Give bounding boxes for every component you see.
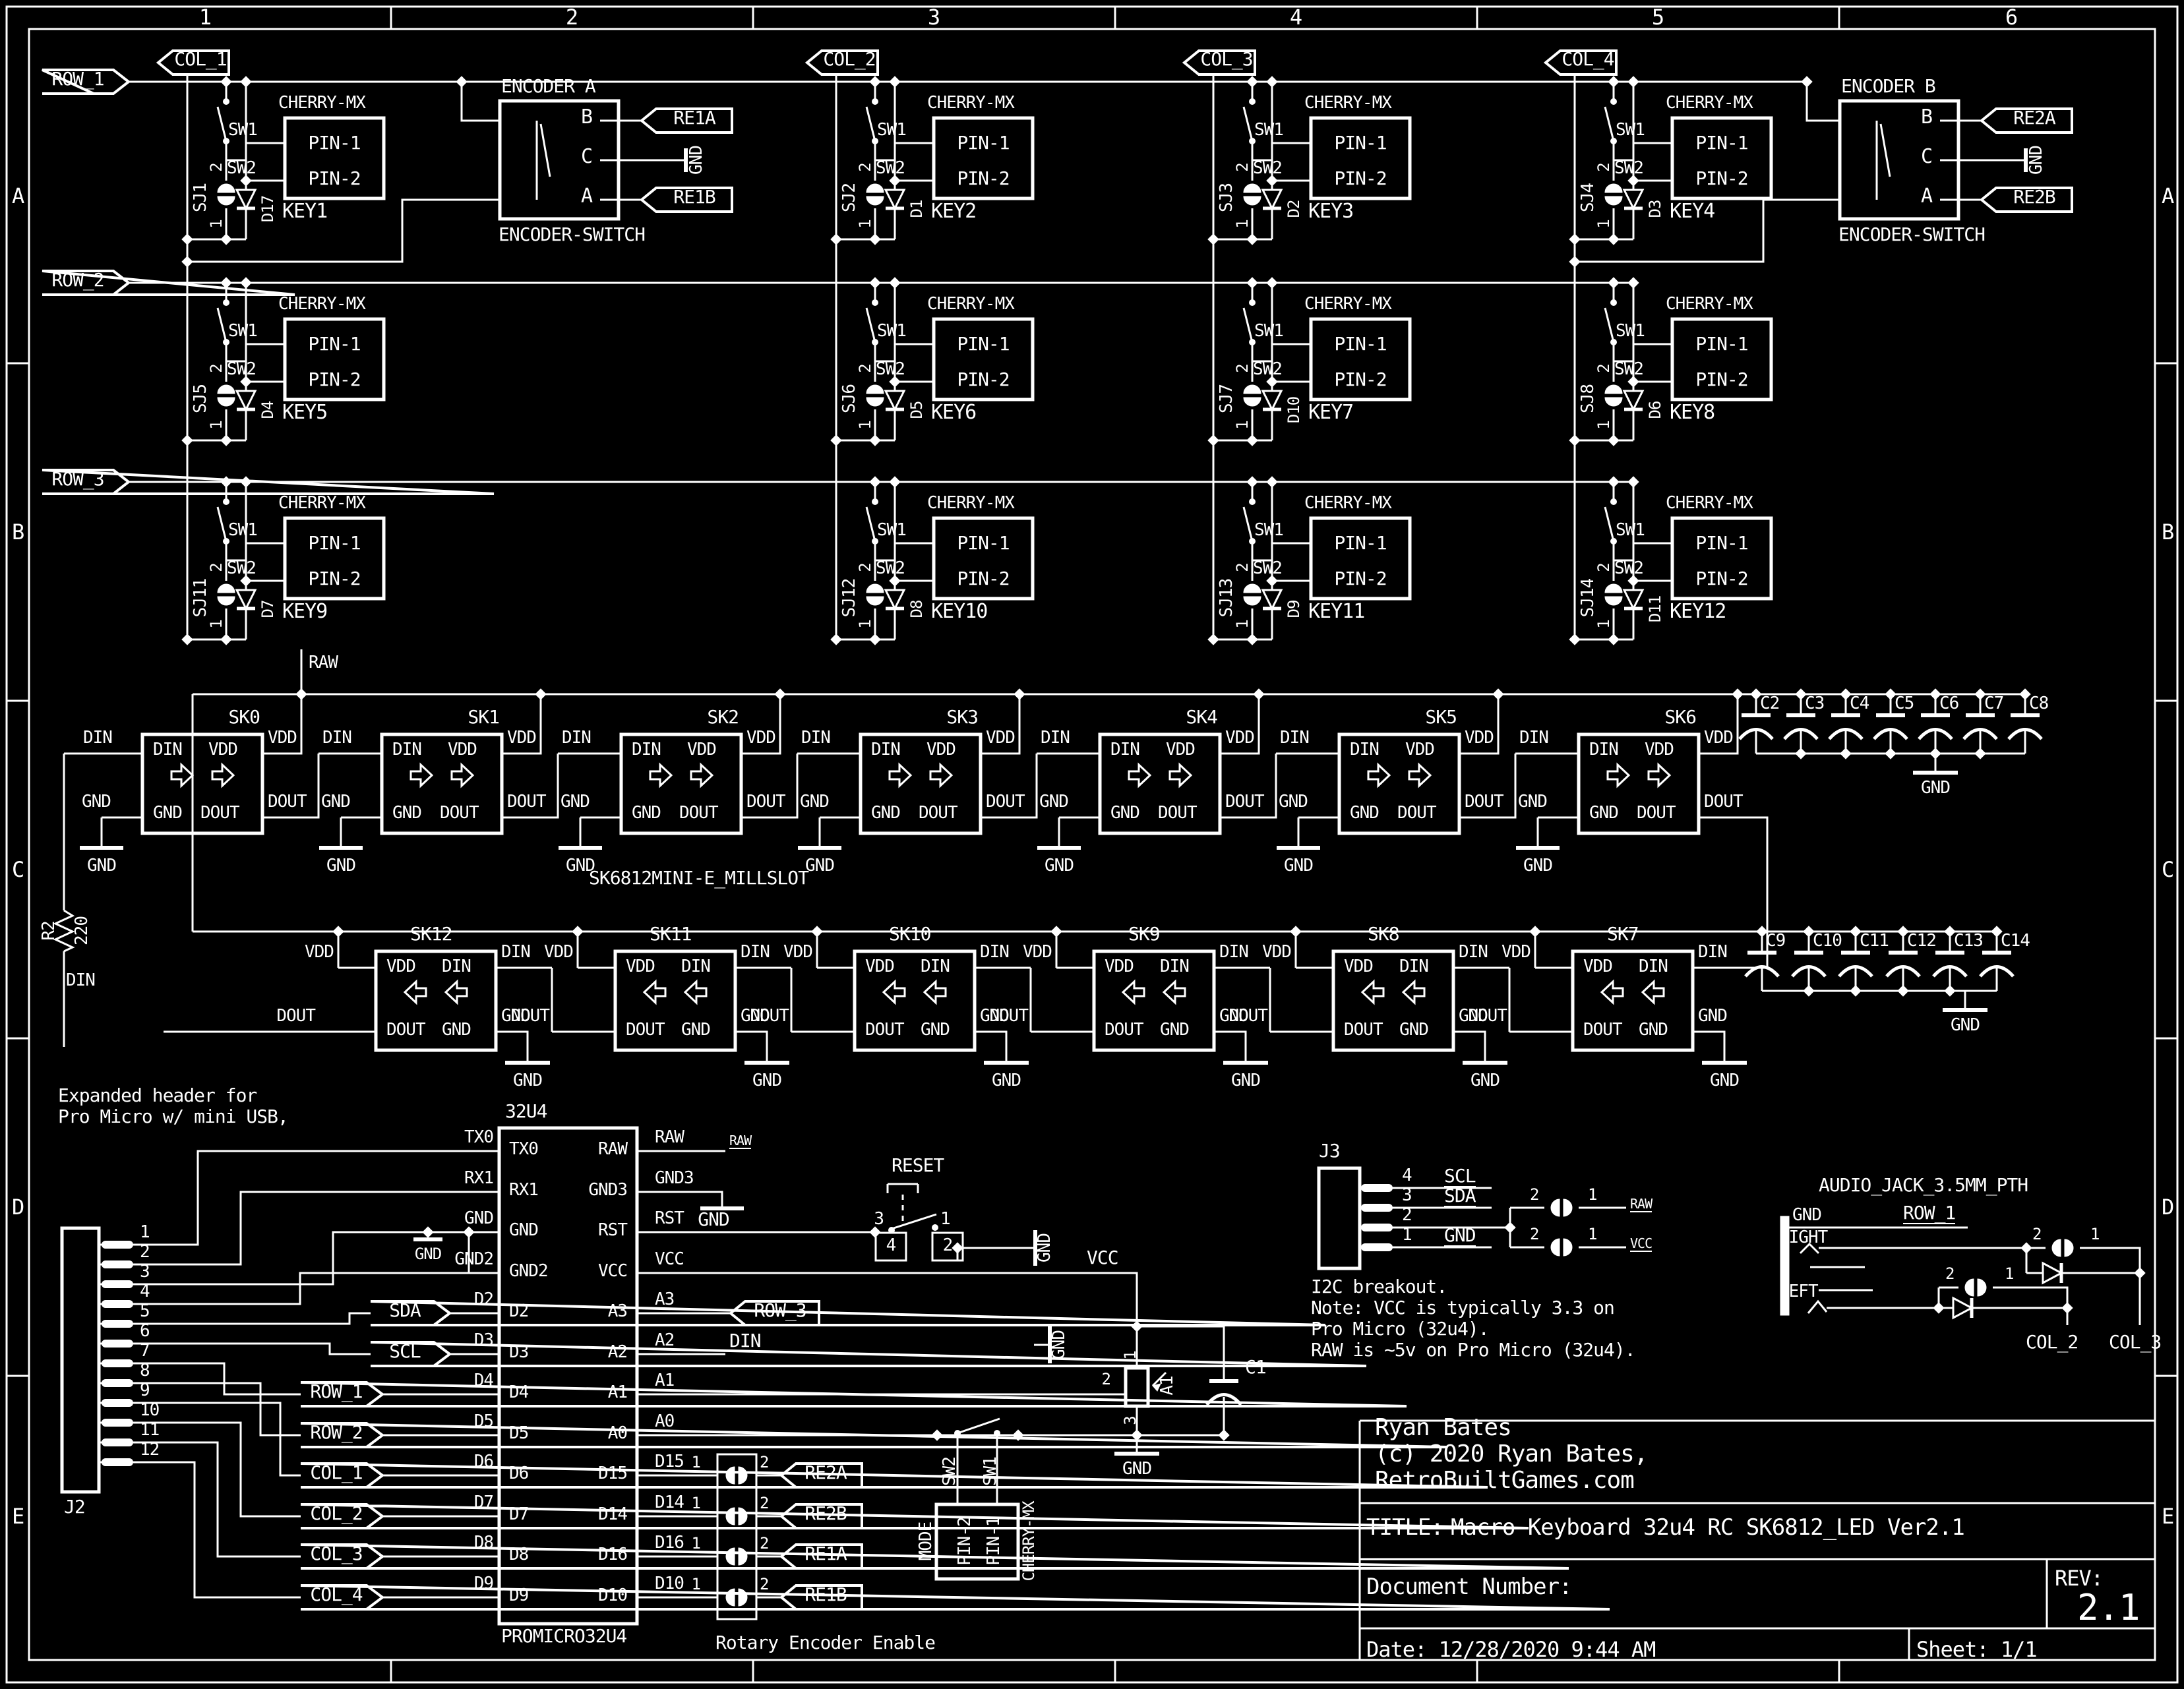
ruler-col-label: 5: [1652, 7, 1664, 28]
key-part-label: CHERRY-MX: [927, 295, 1014, 312]
key-pin-label: PIN-1: [1334, 335, 1386, 353]
gnd-symbol-label: GND: [1284, 857, 1313, 874]
jumper-pin-label: 2: [1596, 364, 1612, 372]
net-label: VDD: [1023, 943, 1052, 961]
cap-ref: C10: [1813, 932, 1842, 949]
chip-pin-name: RX1: [509, 1181, 538, 1199]
key-pin-label: PIN-1: [1695, 534, 1747, 552]
net-label: DOUT: [986, 793, 1025, 810]
key-pin-label: PIN-2: [1695, 570, 1747, 588]
chip-pin-name: D2: [509, 1303, 528, 1320]
net-label: COL_1: [310, 1464, 362, 1482]
net-label: DOUT: [1344, 1021, 1383, 1038]
key-pin-label: PIN-1: [1695, 134, 1747, 152]
chip-pin-label: D3: [474, 1332, 493, 1349]
owner-line: (c) 2020 Ryan Bates,: [1375, 1442, 1647, 1466]
key-sw-label: SW2: [227, 560, 256, 577]
gnd-symbol-label: GND: [1050, 1330, 1068, 1359]
net-label: DIN: [392, 741, 421, 758]
chip-pin-name: D14: [598, 1506, 627, 1523]
net-label: GND: [1160, 1021, 1189, 1038]
net-label: VCC: [1630, 1237, 1652, 1252]
connector-pin-number: 12: [140, 1441, 159, 1458]
net-label: DIN: [980, 943, 1009, 961]
net-label: DOUT: [626, 1021, 665, 1038]
net-label: DIN: [1519, 729, 1548, 746]
net-label: RE1B: [673, 188, 715, 206]
gnd-symbol-label: GND: [326, 857, 355, 874]
chip-pin-name: GND3: [588, 1181, 627, 1199]
net-label: RE2B: [2013, 188, 2055, 206]
switch-pin: 1: [940, 1210, 950, 1228]
key-pin-label: PIN-2: [1695, 370, 1747, 389]
i2c-note: RAW is ~5v on Pro Micro (32u4).: [1311, 1341, 1635, 1359]
connector-pin-number: 3: [1402, 1187, 1412, 1204]
key-pin-label: PIN-2: [1334, 169, 1386, 188]
switch-pin: 4: [886, 1237, 896, 1254]
net-label: DIN: [83, 729, 112, 746]
mode-label: MODE: [917, 1522, 934, 1561]
gnd-symbol-label: GND: [1921, 779, 1950, 796]
net-label: VDD: [208, 741, 237, 758]
chip-pin-label: D14: [655, 1494, 684, 1511]
net-label: VDD: [626, 958, 655, 975]
net-label: DOUT: [1105, 1021, 1143, 1038]
net-label: VDD: [448, 741, 477, 758]
chip-pin-name: GND2: [509, 1262, 548, 1280]
chip-pin-label: GND3: [655, 1170, 694, 1187]
net-label: DOUT: [507, 793, 546, 810]
resistor-value: 220: [73, 916, 90, 945]
connector-pin-number: 5: [140, 1303, 150, 1320]
key-pin-label: PIN-2: [957, 570, 1009, 588]
jumper-pin-label: 1: [1234, 620, 1250, 628]
key-sw-label: SW1: [1254, 322, 1283, 340]
net-label: GND: [800, 793, 829, 810]
jumper-pin-label: 1: [1596, 220, 1612, 228]
schematic-sheet: Ryan Bates (c) 2020 Ryan Bates, RetroBui…: [0, 0, 2184, 1689]
cap-ref: C4: [1850, 695, 1869, 712]
key-part-label: CHERRY-MX: [278, 94, 365, 111]
net-label: SDA: [389, 1301, 421, 1320]
net-label: GND: [1639, 1021, 1668, 1038]
encoder-pin: C: [581, 147, 592, 167]
connector-pin-number: 8: [140, 1362, 150, 1379]
key-ref: KEY7: [1308, 403, 1353, 423]
net-label: DIN: [562, 729, 591, 746]
connector-pin-number: 6: [140, 1322, 150, 1340]
net-label: GND: [321, 793, 350, 810]
resistor-ref: R2: [40, 921, 57, 940]
jumper-pin-label: 1: [857, 620, 873, 628]
net-label: ROW_1: [310, 1382, 362, 1401]
net-label: DOUT: [919, 804, 957, 821]
net-label: COL_4: [1562, 50, 1614, 69]
net-label: DIN: [1459, 943, 1488, 961]
chip-pin-name: D6: [509, 1465, 528, 1482]
key-part-label: CHERRY-MX: [1666, 494, 1753, 512]
net-label: RE2A: [2013, 109, 2055, 127]
net-label: DIN: [442, 958, 471, 975]
gnd-symbol-label: GND: [752, 1072, 781, 1089]
net-label: DOUT: [746, 793, 785, 810]
jumper-pin-label: 2: [2032, 1226, 2041, 1242]
key-pin-label: PIN-2: [956, 1517, 973, 1565]
jumper-pin-label: 1: [692, 1495, 700, 1511]
chip-pin-label: RX1: [464, 1170, 493, 1187]
net-label: DIN: [1589, 741, 1618, 758]
net-label: GND: [1039, 793, 1068, 810]
gnd-symbol-label: GND: [1523, 857, 1552, 874]
key-ref: KEY1: [282, 202, 327, 222]
chip-pin-label: D8: [474, 1534, 493, 1551]
ruler-row-label: C: [12, 859, 24, 880]
net-label: DOUT: [1228, 1007, 1267, 1024]
key-pin-label: PIN-1: [957, 534, 1009, 552]
net-label: COL_2: [310, 1504, 362, 1523]
gnd-symbol-label: GND: [1231, 1072, 1260, 1089]
encoder-name: ENCODER B: [1841, 77, 1935, 96]
solder-jumper-ref: SJ3: [1218, 183, 1235, 212]
key-pin-label: PIN-2: [1334, 370, 1386, 389]
key-pin-label: PIN-2: [308, 570, 360, 588]
diode-ref: D2: [1286, 200, 1302, 218]
key-pin-label: PIN-1: [957, 335, 1009, 353]
key-ref: KEY9: [282, 602, 327, 622]
jumper-pin-label: 1: [857, 220, 873, 228]
jumper-pin-label: 2: [857, 163, 873, 171]
jumper-pin-label: 2: [760, 1495, 768, 1511]
key-ref: KEY6: [931, 403, 976, 423]
led-ref: SK8: [1368, 925, 1399, 943]
key-pin-label: PIN-1: [957, 134, 1009, 152]
cap-ref: C9: [1766, 932, 1785, 949]
chip-pin-label: D15: [655, 1453, 684, 1470]
key-pin-label: PIN-1: [985, 1517, 1002, 1565]
key-part-label: CHERRY-MX: [927, 494, 1014, 512]
key-sw-label: SW2: [1614, 160, 1643, 177]
chip-pin-name: D9: [509, 1587, 528, 1604]
i2c-note: I2C breakout.: [1311, 1278, 1447, 1296]
cap-ref: C3: [1805, 695, 1824, 712]
key-sw-label: SW2: [1253, 560, 1282, 577]
ruler-col-label: 3: [928, 7, 940, 28]
net-label: GND: [1279, 793, 1308, 810]
key-ref: KEY2: [931, 202, 976, 222]
i2c-note: Pro Micro (32u4).: [1311, 1320, 1489, 1338]
ruler-col-label: 1: [199, 7, 211, 28]
net-label: DIN: [1219, 943, 1248, 961]
net-label: VDD: [305, 943, 334, 961]
key-pin-label: PIN-1: [1334, 134, 1386, 152]
connector-pin-number: 10: [140, 1402, 159, 1419]
net-label: DIN: [1698, 943, 1727, 961]
net-label: GND: [1518, 793, 1547, 810]
net-label: DIN: [1639, 958, 1668, 975]
header-note: Expanded header for: [58, 1086, 257, 1105]
chip-pin-label: D10: [655, 1575, 684, 1592]
key-ref: KEY12: [1670, 602, 1726, 622]
net-label: COL_1: [174, 50, 226, 69]
jumper-pin-label: 2: [1234, 563, 1250, 572]
jumper-pin-label: 1: [208, 421, 224, 429]
jumper-pin-label: 1: [1588, 1226, 1596, 1242]
gnd-symbol-label: GND: [698, 1210, 729, 1229]
solder-jumper-ref: SJ6: [841, 384, 858, 413]
connector-pin-number: 11: [140, 1421, 159, 1438]
owner-line: RetroBuiltGames.com: [1375, 1469, 1634, 1493]
pot-pin: 1: [1122, 1351, 1138, 1359]
jumper-pin-label: 1: [857, 421, 873, 429]
jumper-pin-label: 2: [1596, 563, 1612, 572]
key-ref: KEY11: [1308, 602, 1364, 622]
chip-pin-name: D3: [509, 1344, 528, 1361]
net-label: ROW_3: [754, 1301, 806, 1320]
key-pin-label: PIN-2: [957, 370, 1009, 389]
chip-pin-name: VCC: [598, 1262, 627, 1280]
ruler-row-label: D: [12, 1197, 24, 1218]
net-label: COL_2: [2026, 1333, 2078, 1351]
net-label: DOUT: [200, 804, 239, 821]
net-label: GND: [82, 793, 111, 810]
cap-ref: C11: [1860, 932, 1889, 949]
key-sw-label: SW2: [876, 560, 905, 577]
net-label: VDD: [1166, 741, 1195, 758]
net-label: VDD: [1262, 943, 1291, 961]
solder-jumper-ref: SJ2: [841, 183, 858, 212]
key-sw-label: SW2: [227, 160, 256, 177]
net-label: VDD: [926, 741, 956, 758]
led-ref: SK0: [228, 708, 260, 726]
net-label: DIN: [729, 1332, 761, 1352]
chip-pin-label: A0: [655, 1413, 674, 1430]
cap-ref: C5: [1895, 695, 1914, 712]
connector-pin-number: 4: [1402, 1167, 1412, 1184]
key-pin-label: PIN-1: [308, 335, 360, 353]
net-label: VDD: [544, 943, 573, 961]
ruler-row-label: B: [2162, 521, 2173, 543]
chip-pin-label: D16: [655, 1534, 684, 1551]
cap-ref: C1: [1245, 1358, 1266, 1377]
net-label: GND: [1698, 1007, 1727, 1024]
sheet-title: Macro Keyboard 32u4 RC SK6812_LED Ver2.1: [1451, 1516, 1964, 1539]
gnd-symbol-label: GND: [1710, 1072, 1739, 1089]
header-note: Pro Micro w/ mini USB,: [58, 1108, 288, 1126]
net-label: GND: [1350, 804, 1379, 821]
chip-pin-name: D5: [509, 1425, 528, 1442]
jumper-pin-label: 1: [208, 220, 224, 228]
gnd-symbol-label: GND: [2028, 146, 2045, 175]
jumper-pin-label: 1: [1596, 620, 1612, 628]
net-label: DOUT: [440, 804, 479, 821]
chip-pin-name: RST: [598, 1222, 627, 1239]
encoder-pin: C: [1921, 147, 1932, 167]
net-label: DOUT: [510, 1007, 549, 1024]
net-label: COL_3: [2109, 1333, 2161, 1351]
net-label: GND: [632, 804, 661, 821]
solder-jumper-ref: SJ5: [192, 384, 209, 413]
key-sw-label: SW1: [228, 322, 257, 340]
connector-pin-number: 4: [140, 1283, 150, 1300]
reset-label: RESET: [892, 1156, 944, 1175]
cap-ref: C8: [2029, 695, 2048, 712]
jumper-pin-label: 2: [857, 364, 873, 372]
jumper-pin-label: 2: [760, 1535, 768, 1551]
jumper-pin-label: 1: [208, 620, 224, 628]
net-label: DIN: [1280, 729, 1309, 746]
net-label: GND: [1110, 804, 1139, 821]
jumper-pin-label: 1: [2005, 1266, 2013, 1282]
net-label: DIN: [501, 943, 530, 961]
net-label: COL_4: [310, 1585, 362, 1604]
net-label: RE1B: [804, 1585, 846, 1604]
key-part-label: CHERRY-MX: [1304, 295, 1391, 312]
net-label: GND: [1589, 804, 1618, 821]
key-pin-label: PIN-2: [1334, 570, 1386, 588]
key-pin-label: PIN-1: [1334, 534, 1386, 552]
key-pin-label: PIN-2: [957, 169, 1009, 188]
net-label: DOUT: [1225, 793, 1264, 810]
chip-pin-name: A0: [608, 1425, 627, 1442]
led-part-label: SK6812MINI-E_MILLSLOT: [589, 869, 808, 887]
key-sw-label: SW1: [228, 121, 257, 138]
gnd-symbol-label: GND: [1951, 1017, 1980, 1034]
key-part-label: CHERRY-MX: [1304, 494, 1391, 512]
key-sw-label: SW2: [876, 361, 905, 378]
chip-pin-name: D16: [598, 1546, 627, 1563]
jumper-pin-label: 2: [1234, 364, 1250, 372]
jumper-pin-label: 1: [2090, 1226, 2099, 1242]
net-label: DOUT: [679, 804, 718, 821]
net-label: GND: [681, 1021, 710, 1038]
gnd-symbol-label: GND: [1471, 1072, 1500, 1089]
ruler-row-label: A: [2162, 185, 2173, 206]
key-pin-label: PIN-1: [308, 134, 360, 152]
jumper-pin-label: 1: [692, 1576, 700, 1592]
solder-jumper-ref: SJ8: [1579, 384, 1596, 413]
key-sw-label: SW1: [1616, 322, 1645, 340]
chip-pin-label: D2: [474, 1291, 493, 1308]
net-label: ROW_1: [51, 70, 104, 88]
net-label: COL_3: [310, 1545, 362, 1563]
chip-pin-label: TX0: [464, 1129, 493, 1146]
net-label: VDD: [687, 741, 716, 758]
net-label: ROW_1: [1903, 1204, 1955, 1224]
net-label: SDA: [1444, 1187, 1476, 1207]
net-label: VDD: [1501, 943, 1531, 961]
chip-pin-name: D15: [598, 1465, 627, 1482]
rotary-note: Rotary Encoder Enable: [715, 1634, 935, 1652]
jumper-pin-label: 1: [692, 1535, 700, 1551]
chip-pin-name: D8: [509, 1546, 528, 1563]
key-pin-label: PIN-1: [1695, 335, 1747, 353]
gnd-symbol-label: GND: [566, 857, 595, 874]
jumper-pin-label: 1: [1588, 1187, 1596, 1202]
net-label: DIN: [1110, 741, 1139, 758]
jumper-pin-label: 1: [1596, 421, 1612, 429]
key-part-label: CHERRY-MX: [927, 94, 1014, 111]
jumper-pin-label: 2: [1596, 163, 1612, 171]
net-label: DOUT: [1465, 793, 1503, 810]
jumper-pin-label: 2: [1234, 163, 1250, 171]
cap-ref: C2: [1760, 695, 1779, 712]
chip-pin-label: D9: [474, 1575, 493, 1592]
net-label: ROW_3: [51, 470, 104, 489]
connector-pin-number: 3: [140, 1263, 150, 1280]
jumper-pin-label: 2: [857, 563, 873, 572]
diode-ref: D17: [260, 196, 276, 222]
chip-part: PROMICRO32U4: [501, 1627, 626, 1645]
ruler-col-label: 2: [566, 7, 578, 28]
connector-ref: J2: [64, 1498, 85, 1516]
gnd-symbol-label: GND: [805, 857, 834, 874]
jumper-pin-label: 2: [208, 163, 224, 171]
diode-ref: D6: [1647, 401, 1663, 419]
diode-ref: D9: [1286, 601, 1302, 618]
net-label: DIN: [801, 729, 830, 746]
key-part-label: CHERRY-MX: [1666, 94, 1753, 111]
ruler-col-label: 6: [2005, 7, 2017, 28]
chip-ref: 32U4: [505, 1102, 547, 1121]
key-sw-label: SW1: [877, 322, 906, 340]
net-label: VDD: [865, 958, 894, 975]
pot-pin: 2: [1102, 1371, 1110, 1387]
net-label: DIN: [741, 943, 770, 961]
chip-pin-label: GND2: [454, 1251, 493, 1268]
connector-pin-number: 9: [140, 1382, 150, 1399]
jumper-pin-label: 2: [1530, 1187, 1538, 1202]
solder-jumper-ref: SJ13: [1218, 579, 1235, 618]
key-pin-label: PIN-2: [308, 370, 360, 389]
encoder-part: ENCODER-SWITCH: [1838, 225, 1985, 244]
led-ref: SK3: [946, 708, 978, 726]
key-ref: KEY8: [1670, 403, 1714, 423]
diode-ref: D10: [1286, 397, 1302, 423]
connector-pin-number: 1: [140, 1224, 150, 1241]
chip-pin-name: A1: [608, 1384, 627, 1401]
gnd-symbol-label: GND: [513, 1072, 542, 1089]
led-ref: SK4: [1186, 708, 1217, 726]
connector-ref: J3: [1319, 1142, 1340, 1160]
chip-pin-label: RAW: [655, 1129, 684, 1146]
chip-pin-name: RAW: [598, 1141, 627, 1158]
ruler-row-label: B: [12, 521, 24, 543]
net-label: RAW: [1630, 1197, 1652, 1212]
jumper-pin-label: 1: [1234, 220, 1250, 228]
net-label: VDD: [1105, 958, 1134, 975]
chip-pin-name: A3: [608, 1303, 627, 1320]
chip-pin-label: GND: [464, 1210, 493, 1227]
net-label: DIN: [681, 958, 710, 975]
jumper-pin-label: 2: [760, 1454, 768, 1470]
net-label: GND: [153, 804, 182, 821]
net-label: VDD: [1405, 741, 1434, 758]
gnd-symbol-label: GND: [87, 857, 116, 874]
date-label: Date: 12/28/2020 9:44 AM: [1366, 1639, 1655, 1660]
chip-pin-label: RST: [655, 1210, 684, 1227]
chip-pin-label: VCC: [655, 1251, 684, 1268]
jumper-pin-label: 2: [208, 563, 224, 572]
net-label: DIN: [1160, 958, 1189, 975]
chip-pin-name: D10: [598, 1587, 627, 1604]
net-label: VDD: [1225, 729, 1254, 746]
net-label: DIN: [921, 958, 950, 975]
jumper-pin-label: 2: [1530, 1226, 1538, 1242]
gnd-symbol-label: GND: [992, 1072, 1021, 1089]
key-sw-label: SW1: [1616, 521, 1645, 539]
jack-pin-label: LEFT: [1779, 1283, 1818, 1300]
led-ref: SK6: [1664, 708, 1696, 726]
